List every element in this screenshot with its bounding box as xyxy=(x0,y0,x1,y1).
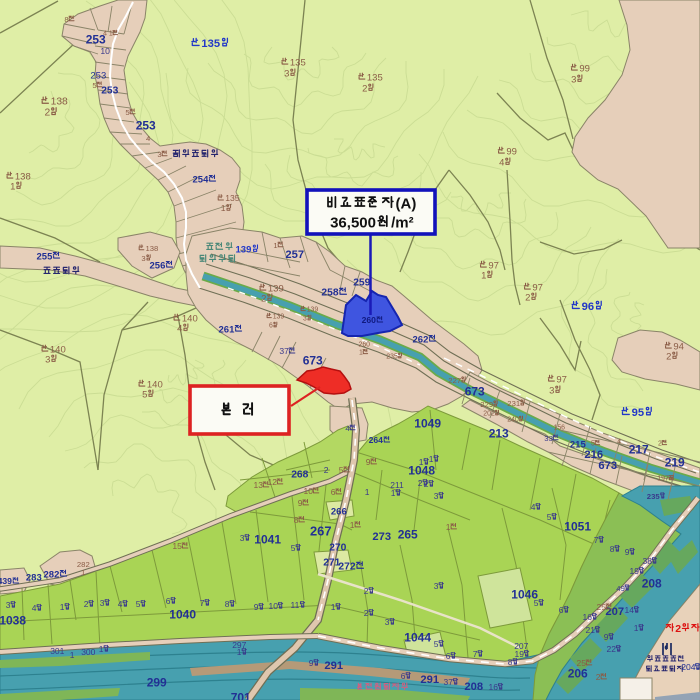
svg-text:1: 1 xyxy=(70,650,75,660)
svg-text:9: 9 xyxy=(309,658,314,668)
svg-text:1040: 1040 xyxy=(169,607,196,621)
svg-text:14: 14 xyxy=(625,605,635,615)
svg-text:240: 240 xyxy=(507,417,519,424)
svg-text:4: 4 xyxy=(118,599,123,609)
svg-text:5: 5 xyxy=(291,543,296,553)
svg-text:3: 3 xyxy=(571,74,576,85)
svg-text:253: 253 xyxy=(90,70,106,81)
svg-text:138: 138 xyxy=(146,244,159,253)
svg-text:235: 235 xyxy=(386,354,398,361)
svg-text:3: 3 xyxy=(240,533,245,543)
svg-text:1: 1 xyxy=(99,644,104,654)
svg-text:1: 1 xyxy=(331,602,336,612)
svg-text:135: 135 xyxy=(201,38,220,50)
svg-text:37: 37 xyxy=(279,346,289,356)
svg-text:99: 99 xyxy=(506,146,517,157)
svg-text:213: 213 xyxy=(489,426,509,440)
svg-text:1: 1 xyxy=(446,522,451,532)
svg-text:5: 5 xyxy=(339,465,344,475)
svg-text:208: 208 xyxy=(464,681,483,693)
svg-text:2: 2 xyxy=(424,479,429,489)
svg-text:6: 6 xyxy=(269,323,273,330)
svg-text:138: 138 xyxy=(51,97,68,108)
svg-text:301: 301 xyxy=(50,646,64,656)
svg-text:135: 135 xyxy=(225,193,240,203)
svg-text:1: 1 xyxy=(429,454,434,464)
svg-text:258: 258 xyxy=(321,288,338,299)
svg-text:219: 219 xyxy=(665,455,685,469)
svg-text:227: 227 xyxy=(448,376,461,385)
svg-text:2: 2 xyxy=(596,672,601,682)
svg-text:5: 5 xyxy=(142,389,147,400)
svg-text:4: 4 xyxy=(177,323,182,334)
svg-text:99: 99 xyxy=(579,63,590,74)
svg-text:4: 4 xyxy=(531,502,536,512)
svg-text:3: 3 xyxy=(284,68,289,79)
svg-text:97: 97 xyxy=(532,282,543,293)
svg-text:2: 2 xyxy=(84,599,89,609)
svg-text:291: 291 xyxy=(324,660,343,672)
svg-text:8: 8 xyxy=(508,657,513,667)
svg-text:139: 139 xyxy=(307,307,319,314)
svg-text:3: 3 xyxy=(549,385,554,396)
svg-text:3: 3 xyxy=(100,598,105,608)
svg-text:21: 21 xyxy=(586,625,596,635)
svg-text:135: 135 xyxy=(290,57,306,68)
svg-text:4: 4 xyxy=(32,603,37,613)
svg-text:5: 5 xyxy=(92,81,96,90)
svg-text:299: 299 xyxy=(147,675,167,689)
svg-text:1: 1 xyxy=(10,181,15,192)
svg-text:283: 283 xyxy=(26,572,42,583)
svg-text:25: 25 xyxy=(597,602,607,612)
svg-text:291: 291 xyxy=(420,674,439,686)
svg-text:3: 3 xyxy=(434,491,439,501)
svg-text:6: 6 xyxy=(401,671,406,681)
svg-text:10: 10 xyxy=(304,486,314,496)
svg-text:22: 22 xyxy=(607,644,617,654)
svg-text:4: 4 xyxy=(146,134,151,143)
svg-text:5: 5 xyxy=(125,108,129,117)
svg-text:673: 673 xyxy=(303,353,323,367)
svg-text:140: 140 xyxy=(182,313,198,324)
svg-text:139: 139 xyxy=(268,283,284,294)
svg-text:140: 140 xyxy=(147,379,163,390)
svg-text:5: 5 xyxy=(591,441,595,448)
svg-text:3: 3 xyxy=(303,316,307,323)
svg-text:2: 2 xyxy=(364,608,369,618)
svg-text:9: 9 xyxy=(366,457,371,467)
svg-text:140: 140 xyxy=(50,344,66,355)
svg-text:300: 300 xyxy=(81,647,95,657)
svg-text:25: 25 xyxy=(577,658,587,668)
svg-text:206: 206 xyxy=(568,666,588,680)
svg-text:1: 1 xyxy=(419,457,424,467)
svg-text:1: 1 xyxy=(634,623,639,633)
svg-text:3: 3 xyxy=(141,254,145,263)
svg-text:6: 6 xyxy=(559,605,564,615)
svg-text:156: 156 xyxy=(554,425,566,432)
svg-text:254: 254 xyxy=(193,174,210,185)
svg-text:95: 95 xyxy=(632,407,644,419)
svg-text:673: 673 xyxy=(465,384,485,398)
svg-text:16: 16 xyxy=(583,612,593,622)
svg-text:9: 9 xyxy=(254,602,259,612)
svg-text:19: 19 xyxy=(515,649,525,659)
svg-text:2: 2 xyxy=(525,292,530,303)
svg-text:8: 8 xyxy=(225,599,230,609)
svg-text:4 1: 4 1 xyxy=(103,31,113,38)
svg-text:5: 5 xyxy=(434,639,439,649)
svg-text:7: 7 xyxy=(594,535,599,545)
svg-text:12: 12 xyxy=(268,477,278,487)
svg-text:1: 1 xyxy=(350,520,355,530)
svg-text:2: 2 xyxy=(666,351,671,362)
svg-text:1051: 1051 xyxy=(564,519,591,533)
svg-text:256: 256 xyxy=(150,260,166,271)
svg-text:97: 97 xyxy=(488,260,499,271)
svg-text:673: 673 xyxy=(598,460,617,472)
svg-text:3: 3 xyxy=(6,600,11,610)
svg-text:5: 5 xyxy=(136,599,141,609)
svg-text:701: 701 xyxy=(231,690,251,700)
svg-text:5: 5 xyxy=(547,512,552,522)
svg-text:138: 138 xyxy=(15,171,31,182)
svg-text:1038: 1038 xyxy=(0,613,26,627)
svg-text:3: 3 xyxy=(434,581,439,591)
svg-text:268: 268 xyxy=(291,470,308,481)
svg-text:261: 261 xyxy=(219,324,236,335)
svg-text:231: 231 xyxy=(507,399,520,408)
svg-text:94: 94 xyxy=(673,341,684,352)
svg-text:139: 139 xyxy=(273,314,285,321)
svg-text:270: 270 xyxy=(329,543,346,554)
svg-text:97: 97 xyxy=(556,374,567,385)
svg-text:3: 3 xyxy=(385,617,390,627)
svg-text:260: 260 xyxy=(359,342,371,349)
svg-text:208: 208 xyxy=(642,576,662,590)
svg-text:2: 2 xyxy=(261,293,266,304)
svg-text:262: 262 xyxy=(413,334,429,345)
svg-text:19: 19 xyxy=(630,566,640,576)
svg-text:1: 1 xyxy=(365,487,370,497)
svg-text:2: 2 xyxy=(658,441,662,448)
svg-text:7: 7 xyxy=(200,598,205,608)
svg-text:255: 255 xyxy=(37,251,54,262)
svg-text:2: 2 xyxy=(418,478,423,488)
svg-text:273: 273 xyxy=(372,531,391,543)
svg-text:264: 264 xyxy=(369,435,384,445)
svg-text:202: 202 xyxy=(483,411,495,418)
svg-text:1: 1 xyxy=(237,647,242,657)
svg-text:49: 49 xyxy=(616,584,625,593)
svg-text:1: 1 xyxy=(273,241,277,250)
svg-text:(A): (A) xyxy=(396,195,417,212)
svg-text:10: 10 xyxy=(100,46,110,56)
svg-text:2: 2 xyxy=(362,83,367,94)
svg-text:8: 8 xyxy=(64,15,68,24)
svg-text:265: 265 xyxy=(398,527,418,541)
svg-text:8: 8 xyxy=(610,544,615,554)
svg-text:135: 135 xyxy=(367,72,383,83)
svg-text:1041: 1041 xyxy=(254,532,281,546)
svg-text:439: 439 xyxy=(0,576,12,586)
svg-text:2: 2 xyxy=(324,465,329,475)
svg-text:253: 253 xyxy=(136,118,156,132)
svg-text:253: 253 xyxy=(101,86,118,97)
svg-text:3: 3 xyxy=(45,354,50,365)
svg-text:1: 1 xyxy=(359,350,363,357)
svg-text:38: 38 xyxy=(643,556,653,566)
svg-text:4: 4 xyxy=(499,157,504,168)
svg-text:9: 9 xyxy=(625,547,630,557)
svg-text:272: 272 xyxy=(338,562,355,573)
svg-text:1: 1 xyxy=(481,270,486,281)
svg-text:1044: 1044 xyxy=(404,630,431,644)
svg-text:33: 33 xyxy=(544,434,553,443)
svg-text:204: 204 xyxy=(681,662,696,672)
svg-text:267: 267 xyxy=(310,524,332,539)
svg-text:8: 8 xyxy=(294,515,299,525)
svg-text:257: 257 xyxy=(285,249,304,261)
svg-text:1: 1 xyxy=(81,568,85,577)
svg-text:37: 37 xyxy=(444,677,454,687)
svg-text:260: 260 xyxy=(362,315,377,325)
svg-text:2: 2 xyxy=(45,108,51,119)
svg-text:197: 197 xyxy=(657,476,669,483)
svg-text:9: 9 xyxy=(604,632,609,642)
svg-text:282: 282 xyxy=(44,569,60,580)
svg-text:5: 5 xyxy=(534,598,539,608)
svg-text:229: 229 xyxy=(480,400,493,409)
svg-text:2: 2 xyxy=(364,586,369,596)
svg-text:15: 15 xyxy=(172,541,182,551)
svg-text:6: 6 xyxy=(166,596,171,606)
svg-text:139: 139 xyxy=(236,244,252,255)
svg-text:2: 2 xyxy=(675,623,681,635)
svg-text:235: 235 xyxy=(647,492,661,501)
svg-text:16: 16 xyxy=(489,682,499,692)
svg-text:259: 259 xyxy=(353,278,370,289)
svg-text:266: 266 xyxy=(331,506,347,517)
svg-text:217: 217 xyxy=(629,442,649,456)
svg-text:6: 6 xyxy=(446,651,451,661)
svg-text:7: 7 xyxy=(473,649,478,659)
svg-text:1049: 1049 xyxy=(414,416,441,430)
svg-text:3: 3 xyxy=(157,150,161,159)
svg-text:36,500: 36,500 xyxy=(330,214,376,231)
svg-text:13: 13 xyxy=(254,480,264,490)
svg-text:1: 1 xyxy=(391,488,396,498)
svg-text:96: 96 xyxy=(582,301,594,313)
svg-text:1: 1 xyxy=(221,203,226,213)
svg-text:/m²: /m² xyxy=(391,214,414,231)
svg-text:10: 10 xyxy=(269,601,279,611)
svg-text:6: 6 xyxy=(331,487,336,497)
svg-text:4: 4 xyxy=(617,439,621,446)
svg-text:207: 207 xyxy=(605,606,624,618)
svg-text:9: 9 xyxy=(298,498,303,508)
svg-text:1: 1 xyxy=(60,602,65,612)
svg-text:11: 11 xyxy=(291,600,300,610)
